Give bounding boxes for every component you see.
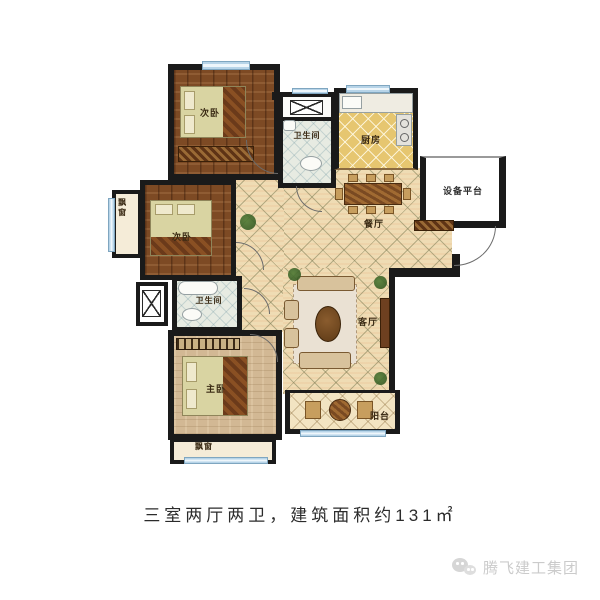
label-living: 客厅 [340, 317, 396, 328]
window [108, 198, 115, 252]
duct-icon [290, 100, 323, 115]
floor-plan-image: 次卧 次卧 主卧 卫生间 卫生间 厨房 餐厅 客厅 阳台 设备平台 飘窗 飘窗 … [0, 0, 600, 600]
wechat-icon [452, 556, 478, 578]
entry-threshold [414, 220, 454, 231]
dining-table-icon [344, 183, 402, 205]
toilet-icon [300, 156, 322, 171]
toilet-icon [182, 308, 202, 321]
kitchen-sink-icon [342, 96, 362, 109]
window [292, 88, 328, 94]
plant-icon [240, 214, 256, 230]
wall-segment [272, 92, 282, 100]
plant-icon [374, 276, 387, 289]
label-platform: 设备平台 [428, 186, 498, 197]
label-dining: 餐厅 [344, 219, 404, 230]
armchair-icon [284, 328, 299, 348]
stove-icon [396, 114, 412, 146]
label-bay-left: 飘窗 [117, 198, 127, 218]
label-balcony: 阳台 [360, 411, 400, 422]
sofa-icon [299, 352, 351, 369]
plant-icon [288, 268, 301, 281]
label-bay-bottom: 飘窗 [184, 442, 224, 452]
label-bedroom-mid: 次卧 [158, 232, 206, 243]
brand-name: 腾飞建工集团 [483, 557, 579, 578]
master-wardrobe [176, 338, 240, 350]
wall-segment [390, 268, 460, 277]
window [184, 457, 268, 464]
window [346, 85, 390, 93]
label-bathroom-mid: 卫生间 [180, 296, 238, 306]
sofa-icon [297, 276, 355, 291]
coffee-table-icon [315, 306, 341, 342]
window [300, 430, 386, 437]
bed-icon [150, 200, 212, 256]
label-kitchen: 厨房 [346, 135, 396, 146]
door-arc-entry [454, 226, 496, 266]
label-bathroom-top: 卫生间 [280, 131, 334, 141]
plant-icon [374, 372, 387, 385]
window [202, 61, 250, 70]
duct-shaft [283, 97, 331, 121]
elevator-icon [142, 290, 161, 317]
plan-caption: 三室两厅两卫，建筑面积约131㎡ [0, 501, 600, 526]
bedroom-top-rug [178, 146, 254, 162]
armchair-icon [284, 300, 299, 320]
label-bedroom-top: 次卧 [188, 108, 232, 119]
label-master: 主卧 [194, 384, 238, 395]
balcony-table-icon [329, 399, 351, 421]
elevator-shaft [136, 282, 168, 326]
bathtub-icon [178, 281, 218, 295]
brand-watermark: 腾飞建工集团 [452, 556, 579, 578]
sink-icon [283, 120, 296, 131]
